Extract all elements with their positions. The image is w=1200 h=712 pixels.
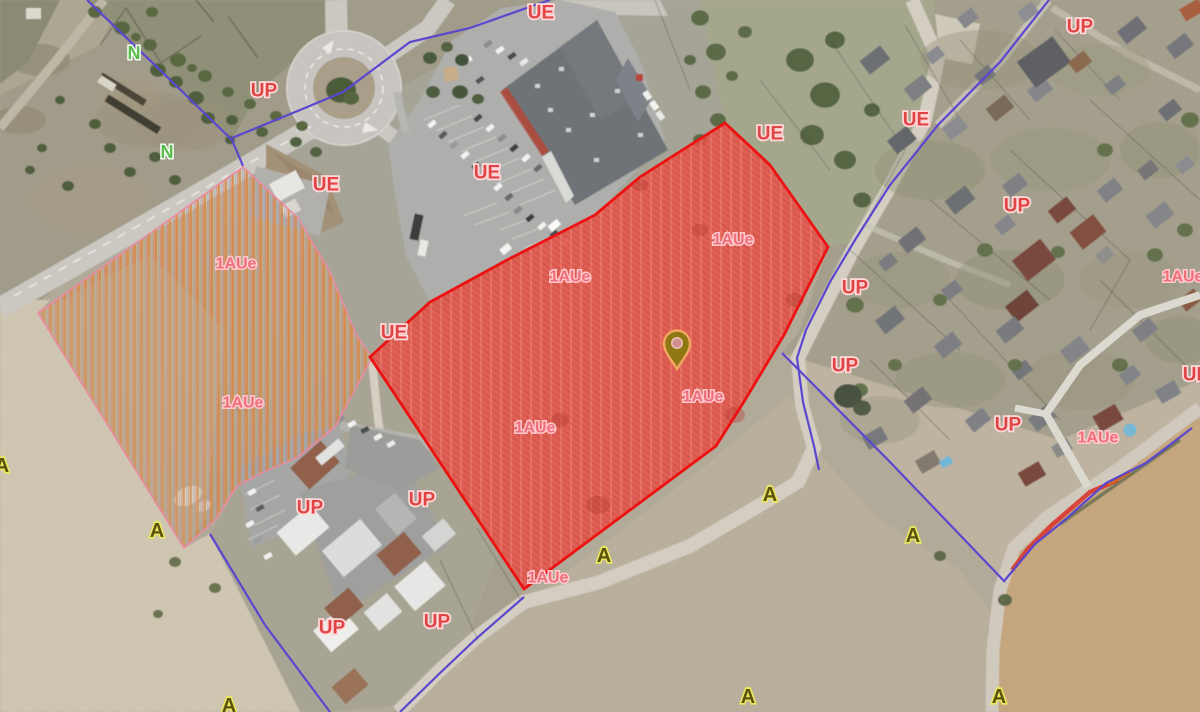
svg-text:1AUe: 1AUe: [1078, 430, 1119, 447]
svg-text:UP: UP: [1067, 17, 1094, 38]
svg-text:UP: UP: [319, 618, 346, 639]
svg-text:UE: UE: [313, 175, 339, 196]
svg-text:N: N: [161, 142, 174, 162]
svg-text:A: A: [763, 484, 777, 506]
svg-text:1AUe: 1AUe: [1163, 269, 1200, 286]
svg-text:A: A: [222, 695, 236, 712]
svg-text:1AUe: 1AUe: [550, 269, 591, 286]
svg-text:1AUe: 1AUe: [713, 232, 754, 249]
svg-text:UE: UE: [757, 124, 783, 145]
svg-text:A: A: [906, 525, 920, 547]
svg-text:A: A: [597, 545, 611, 567]
svg-text:1AUe: 1AUe: [515, 420, 556, 437]
svg-text:UP: UP: [424, 612, 451, 633]
svg-text:A: A: [992, 686, 1006, 708]
svg-text:UP: UP: [995, 415, 1022, 436]
svg-text:A: A: [741, 686, 755, 708]
svg-text:1AUe: 1AUe: [216, 256, 257, 273]
svg-text:UP: UP: [1004, 196, 1031, 217]
svg-text:1AUe: 1AUe: [528, 570, 569, 587]
svg-text:1AUe: 1AUe: [683, 389, 724, 406]
svg-text:UE: UE: [903, 110, 929, 131]
svg-text:UP: UP: [251, 81, 278, 102]
svg-text:UP: UP: [409, 490, 436, 511]
svg-text:UE: UE: [381, 323, 407, 344]
svg-text:UE: UE: [528, 3, 554, 24]
svg-text:UE: UE: [474, 163, 500, 184]
svg-text:UP: UP: [1183, 365, 1200, 386]
svg-text:UP: UP: [297, 498, 324, 519]
svg-text:N: N: [128, 43, 141, 63]
svg-text:UP: UP: [832, 356, 859, 377]
svg-text:A: A: [150, 520, 164, 542]
svg-text:1AUe: 1AUe: [223, 395, 264, 412]
svg-text:A: A: [0, 455, 9, 477]
svg-text:UP: UP: [842, 278, 869, 299]
